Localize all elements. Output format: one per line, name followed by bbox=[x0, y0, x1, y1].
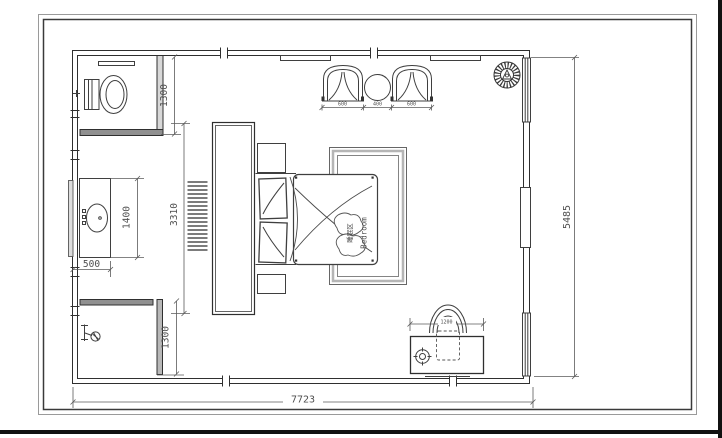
shower-head-icon bbox=[81, 325, 100, 342]
dim-vanity-depth: 500 bbox=[83, 259, 100, 270]
vanity bbox=[69, 179, 111, 258]
dimension-total-depth: 5485 bbox=[531, 55, 579, 379]
toilet bbox=[73, 76, 127, 114]
dim-headboard: 3310 bbox=[169, 203, 180, 226]
desk-area: 1200 bbox=[408, 305, 487, 377]
dimension-vanity-length: 1400 bbox=[111, 176, 145, 260]
dim-total-depth: 5485 bbox=[562, 205, 573, 229]
dim-shower: 1300 bbox=[161, 326, 172, 349]
bed-zone-label-zh: 睡眠区 bbox=[346, 223, 354, 243]
vanity-mirror bbox=[69, 181, 74, 257]
bed-zone-label-en: Bedroom bbox=[360, 217, 369, 249]
dimension-total-width: 7723 bbox=[71, 387, 536, 408]
nightstand-bottom bbox=[258, 275, 286, 294]
toilet-room bbox=[73, 56, 163, 136]
viewport-edge-right bbox=[718, 0, 722, 438]
dimension-headboard: 3310 bbox=[169, 121, 190, 316]
dimension-seating: 600 400 600 bbox=[320, 102, 435, 111]
sitting-area: 600 400 600 bbox=[320, 66, 435, 111]
top-wall-shelf bbox=[431, 56, 481, 61]
right-wall-openings bbox=[521, 58, 531, 376]
floor-plan-drawing: 睡眠区 Bedroom bbox=[0, 0, 722, 438]
armchair-right bbox=[391, 66, 434, 102]
wall-niche bbox=[521, 188, 531, 248]
dim-desk: 1200 bbox=[440, 320, 452, 326]
shower-room bbox=[80, 300, 163, 375]
wall-joint-mark bbox=[223, 376, 457, 387]
nightstand-top bbox=[258, 144, 286, 173]
dim-wc: 1300 bbox=[159, 84, 170, 107]
wc-partition-wall bbox=[80, 130, 163, 136]
floor-plan-canvas: 睡眠区 Bedroom bbox=[0, 0, 722, 438]
wc-shelf bbox=[99, 62, 135, 66]
top-wall-shelf bbox=[281, 56, 331, 61]
dim-total-width: 7723 bbox=[291, 395, 315, 406]
ceiling-fan-icon bbox=[494, 62, 520, 88]
dim-seat-right: 600 bbox=[407, 102, 416, 108]
window-bottom bbox=[523, 313, 531, 376]
dim-seat-gap: 400 bbox=[373, 102, 382, 108]
dimension-desk: 1200 bbox=[408, 317, 487, 331]
pillow bbox=[259, 222, 287, 263]
shower-partition-wall bbox=[80, 300, 153, 306]
dim-seat-left: 600 bbox=[338, 102, 347, 108]
viewport-edge-bottom bbox=[0, 430, 722, 434]
striped-runner bbox=[188, 182, 208, 250]
pillow bbox=[259, 178, 287, 219]
headboard-panel bbox=[213, 123, 255, 315]
armchair-left bbox=[322, 66, 365, 102]
dim-vanity-length: 1400 bbox=[122, 206, 133, 229]
desk bbox=[411, 337, 484, 374]
window-top bbox=[523, 58, 531, 122]
side-table bbox=[365, 75, 391, 101]
